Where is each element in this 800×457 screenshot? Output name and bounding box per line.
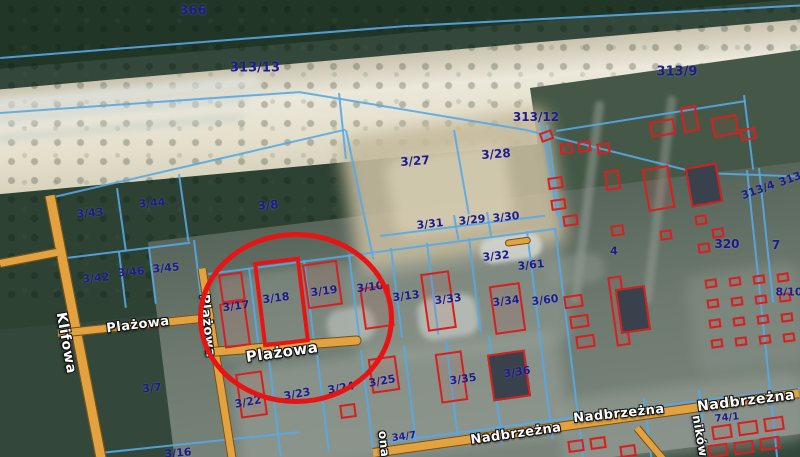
highlight-parcel-rect bbox=[252, 256, 309, 347]
map-canvas[interactable]: 366313/13313/9313/12313/43133/273/283/83… bbox=[0, 0, 800, 457]
highlight-layer bbox=[0, 0, 800, 457]
